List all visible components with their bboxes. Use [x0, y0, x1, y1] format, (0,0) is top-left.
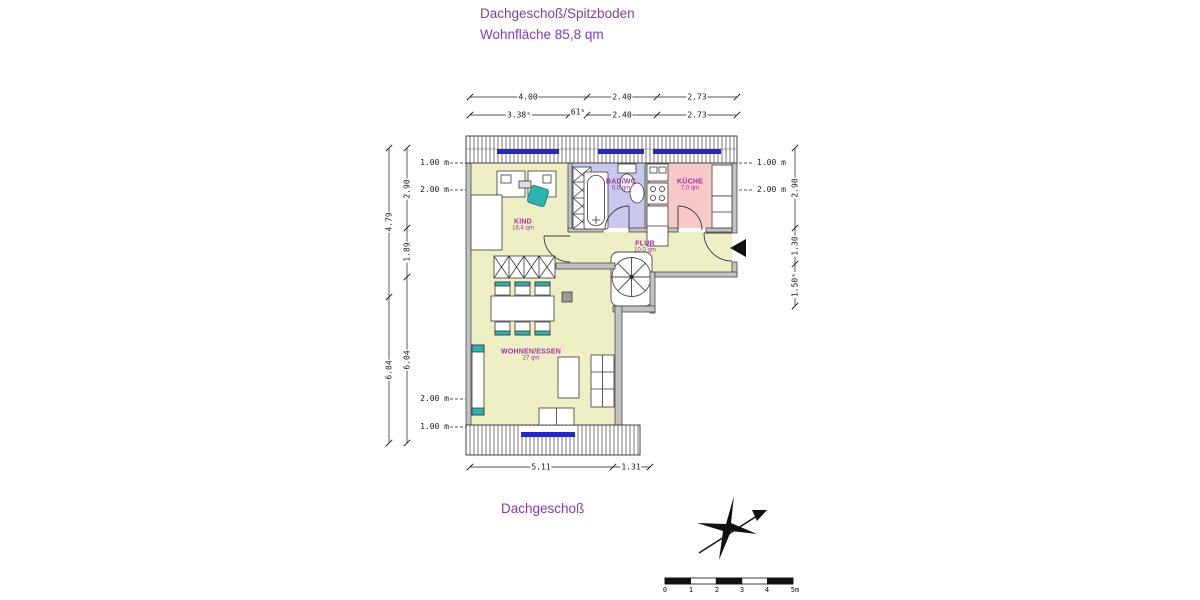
height-left-2m-bottom: 2.00 m [389, 394, 449, 403]
height-left-1m-bottom: 1.00 m [389, 422, 449, 431]
dim-left-outer-1: 4.79 [385, 211, 394, 232]
dormer-windows [497, 149, 721, 154]
entrance-arrow-icon [730, 239, 746, 257]
dim-top2-2: 61⁵ [570, 108, 586, 117]
scale-tick-4: 4 [765, 586, 769, 594]
room-name-wohnen: WOHNEN/ESSEN [501, 349, 561, 356]
roof-band-top [466, 136, 737, 163]
height-right-1m: 1.00 m [757, 158, 786, 167]
room-name-kind: KIND [512, 219, 534, 226]
scale-bar [665, 578, 793, 584]
dim-right-3: 1.50⁵ [791, 272, 800, 298]
bottom-window [521, 432, 575, 437]
dim-bottom-2: 1.31 [620, 463, 641, 472]
height-left-2m-top: 2.00 m [389, 185, 449, 194]
dim-top2-3: 2.40 [611, 111, 632, 120]
room-name-flur: FLUR [634, 241, 656, 248]
dim-top1-2: 2.40 [611, 93, 632, 102]
room-label-bad: BAD/WC 6,0 qm [606, 179, 636, 192]
dim-top2-1: 3.38⁵ [506, 111, 532, 120]
toilet-tank [618, 164, 636, 173]
floorplan-page: Dachgeschoß/Spitzboden Wohnfläche 85,8 q… [0, 0, 1200, 600]
spiral-stair [611, 252, 652, 306]
room-name-bad: BAD/WC [606, 179, 636, 186]
room-label-flur: FLUR 10,0 qm [634, 241, 656, 254]
scale-tick-2: 2 [715, 586, 719, 594]
scale-tick-1: 1 [689, 586, 693, 594]
dim-bottom-1: 5.11 [530, 463, 551, 472]
scale-tick-3: 3 [740, 586, 744, 594]
scale-tick-0: 0 [663, 586, 667, 594]
room-label-kind: KIND 18,4 qm [512, 219, 534, 232]
dim-right-2: 1.30 [791, 235, 800, 256]
dim-top2-4: 2.73 [686, 111, 707, 120]
dim-top1-3: 2.73 [686, 93, 707, 102]
height-left-1m-top: 1.00 m [389, 158, 449, 167]
room-label-kueche: KÜCHE 7,0 qm [677, 179, 703, 192]
room-area-wohnen: 27 qm [501, 356, 561, 362]
scale-tick-5: 5m [791, 586, 799, 594]
room-area-bad: 6,0 qm [606, 186, 636, 192]
height-right-2m: 2.00 m [757, 185, 786, 194]
room-area-kind: 18,4 qm [512, 226, 534, 232]
dim-left-outer-2: 6.04 [385, 359, 394, 380]
dim-top1-1: 4.00 [517, 93, 538, 102]
north-arrow-icon [697, 496, 767, 560]
floorplan-drawing [0, 0, 1200, 600]
room-name-kueche: KÜCHE [677, 179, 703, 186]
roof-band-bottom [466, 425, 640, 455]
stove [647, 183, 668, 204]
dim-left-inner-3: 6.04 [403, 349, 412, 370]
room-label-wohnen: WOHNEN/ESSEN 27 qm [501, 349, 561, 362]
room-area-flur: 10,0 qm [634, 248, 656, 254]
dim-right-1: 2.90 [791, 177, 800, 198]
room-area-kueche: 7,0 qm [677, 186, 703, 192]
dim-left-inner-2: 1.89 [403, 241, 412, 262]
